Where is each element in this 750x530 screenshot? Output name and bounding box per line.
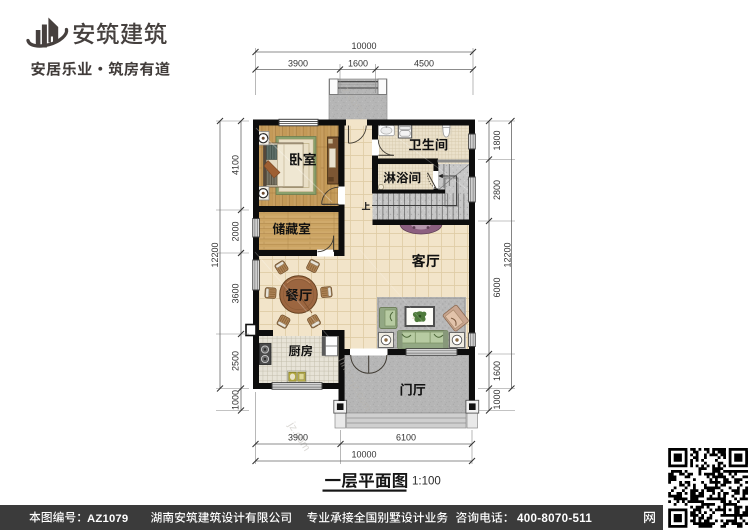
svg-text:10000: 10000 [351,450,376,460]
svg-text:1000: 1000 [231,390,241,410]
svg-text:1800: 1800 [492,130,502,150]
svg-text:2000: 2000 [231,221,241,241]
svg-text:3900: 3900 [288,59,308,69]
svg-text:6000: 6000 [492,277,502,297]
svg-text:400-8070-511: 400-8070-511 [517,512,592,525]
svg-text:3900: 3900 [288,433,308,443]
svg-text:AZ1079: AZ1079 [87,513,128,525]
svg-text:1600: 1600 [492,361,502,381]
svg-text:4100: 4100 [231,155,241,175]
svg-text:6100: 6100 [396,433,416,443]
svg-text:2500: 2500 [231,351,241,371]
svg-text:1600: 1600 [348,59,368,69]
svg-text:2800: 2800 [492,180,502,200]
svg-text:4500: 4500 [414,59,434,69]
svg-text:3600: 3600 [231,283,241,303]
svg-text:12200: 12200 [210,242,220,267]
svg-text:1:100: 1:100 [412,476,441,488]
svg-text:12200: 12200 [503,242,513,267]
svg-text:10000: 10000 [351,41,376,51]
svg-text:1000: 1000 [492,389,502,409]
